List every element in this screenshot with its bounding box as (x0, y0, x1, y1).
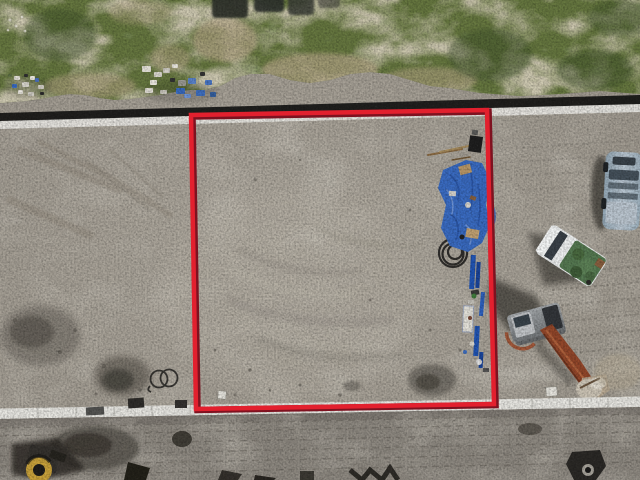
aerial-photo-stage (0, 0, 640, 480)
aerial-photo-svg (0, 0, 640, 480)
